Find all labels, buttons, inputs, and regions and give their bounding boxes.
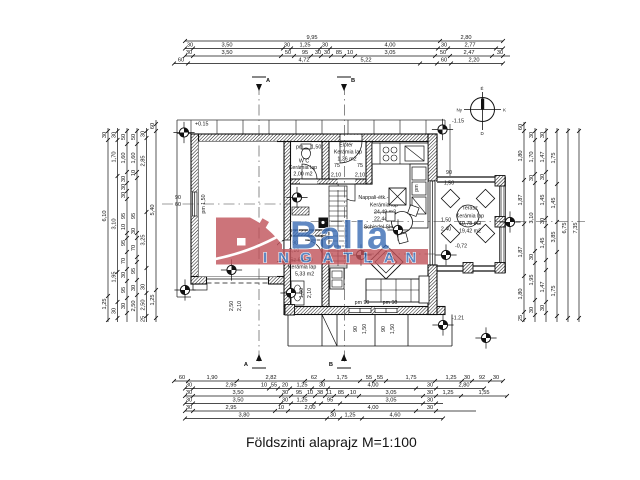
svg-text:1,47: 1,47 [540,281,546,292]
svg-text:1,50: 1,50 [444,181,454,187]
svg-text:75: 75 [357,163,363,169]
svg-text:10,78 m2: 10,78 m2 [459,221,481,227]
svg-text:30: 30 [497,50,503,56]
svg-text:10: 10 [261,383,267,389]
svg-text:30: 30 [121,184,127,190]
svg-text:30: 30 [330,413,336,419]
svg-text:19,42 m2: 19,42 m2 [459,229,481,235]
svg-text:1,36 m2: 1,36 m2 [337,157,356,163]
svg-text:2,50: 2,50 [141,299,147,310]
svg-text:30: 30 [322,43,328,49]
svg-text:10: 10 [131,170,137,176]
svg-text:30: 30 [121,192,127,198]
svg-text:60: 60 [175,202,181,208]
svg-text:W C: W C [299,159,309,165]
svg-text:1,25: 1,25 [344,413,355,419]
svg-text:pm: pm [414,184,420,192]
svg-text:30: 30 [529,307,535,313]
svg-text:2,10: 2,10 [307,288,313,298]
svg-text:2,80: 2,80 [458,383,469,389]
svg-text:2,47: 2,47 [463,50,474,56]
svg-text:2,00 m2: 2,00 m2 [293,172,312,178]
svg-text:1,87: 1,87 [518,194,524,205]
svg-text:4,00: 4,00 [367,405,378,411]
svg-text:1,50: 1,50 [311,145,321,151]
svg-text:3,10: 3,10 [112,218,118,229]
svg-text:1,95: 1,95 [529,274,535,285]
svg-text:1,50: 1,50 [390,324,396,334]
svg-text:3,50: 3,50 [232,390,243,396]
svg-text:Kerámia lap: Kerámia lap [289,165,317,171]
svg-text:4,00: 4,00 [367,383,378,389]
svg-text:+0.15: +0.15 [195,122,208,128]
svg-text:95: 95 [131,213,137,219]
svg-text:30: 30 [529,132,535,138]
svg-text:3,85: 3,85 [551,231,557,242]
svg-text:6,75: 6,75 [562,222,568,233]
svg-text:30: 30 [319,383,325,389]
svg-text:2,50: 2,50 [131,300,137,311]
svg-text:30: 30 [540,132,546,138]
svg-text:3,10: 3,10 [529,212,535,223]
svg-text:92: 92 [479,375,485,381]
svg-text:70: 70 [131,245,137,251]
svg-text:4,60: 4,60 [389,413,400,419]
svg-text:2,10: 2,10 [331,173,341,179]
svg-text:95: 95 [327,398,333,404]
svg-text:1,25: 1,25 [299,43,310,49]
svg-text:1,75: 1,75 [551,152,557,163]
svg-text:1,25: 1,25 [296,398,307,404]
svg-text:50: 50 [440,50,446,56]
svg-text:11: 11 [326,390,332,396]
svg-text:95: 95 [296,390,302,396]
svg-text:30: 30 [315,50,321,56]
svg-text:30: 30 [102,132,108,138]
svg-text:30: 30 [427,398,433,404]
svg-text:Előtér: Előtér [339,143,353,149]
svg-text:30: 30 [131,228,137,234]
svg-text:3,05: 3,05 [385,390,396,396]
svg-text:Kerámia lap: Kerámia lap [456,214,484,220]
svg-text:30: 30 [540,305,546,311]
svg-text:30: 30 [427,383,433,389]
svg-text:1,50: 1,50 [441,218,451,224]
svg-text:2,82: 2,82 [265,375,276,381]
svg-text:1,70: 1,70 [112,151,118,162]
svg-text:1,75: 1,75 [336,375,347,381]
svg-text:90: 90 [381,326,387,332]
svg-text:90: 90 [353,326,359,332]
svg-text:25: 25 [141,316,147,322]
svg-text:85: 85 [338,390,344,396]
svg-text:3,50: 3,50 [221,50,232,56]
svg-text:2,80: 2,80 [460,35,471,41]
svg-text:60: 60 [518,124,524,130]
svg-text:5,40: 5,40 [150,204,156,215]
svg-text:3,05: 3,05 [384,50,395,56]
svg-text:2,10: 2,10 [237,301,243,311]
svg-text:38: 38 [317,390,323,396]
svg-text:10: 10 [121,224,127,230]
svg-text:95: 95 [121,240,127,246]
svg-text:1,25: 1,25 [296,383,307,389]
svg-text:2,50: 2,50 [229,301,235,311]
svg-text:30: 30 [464,375,470,381]
svg-text:Földszinti alaprajz M=1:100: Földszinti alaprajz M=1:100 [246,434,417,450]
svg-text:É: É [481,85,484,91]
svg-text:2,95: 2,95 [225,383,236,389]
svg-text:30: 30 [540,174,546,180]
svg-text:1,60: 1,60 [131,152,137,163]
svg-text:4,00: 4,00 [384,43,395,49]
svg-text:A: A [244,362,248,368]
svg-text:5,33 m2: 5,33 m2 [295,272,314,278]
svg-text:30: 30 [141,131,147,137]
svg-text:60: 60 [150,123,156,129]
svg-text:3,50: 3,50 [232,398,243,404]
svg-text:30: 30 [284,43,290,49]
svg-text:30: 30 [282,390,288,396]
svg-text:30: 30 [131,285,137,291]
svg-text:pm: pm [296,145,304,151]
svg-text:1,25: 1,25 [442,390,453,396]
svg-text:1,45: 1,45 [540,237,546,248]
svg-text:30: 30 [121,303,127,309]
svg-text:95: 95 [302,50,308,56]
svg-text:1,25: 1,25 [150,294,156,305]
svg-text:30: 30 [112,308,118,314]
svg-text:1,70: 1,70 [529,151,535,162]
svg-text:1,75: 1,75 [551,285,557,296]
svg-text:30: 30 [529,254,535,260]
svg-text:6,10: 6,10 [102,210,108,221]
svg-text:55: 55 [271,383,277,389]
svg-text:9,95: 9,95 [306,35,317,41]
svg-text:INGATLAN: INGATLAN [263,250,427,267]
svg-text:75: 75 [334,163,340,169]
svg-text:30: 30 [186,405,192,411]
svg-text:1,95: 1,95 [112,271,118,282]
svg-text:60: 60 [179,375,185,381]
svg-text:30: 30 [529,175,535,181]
svg-text:90: 90 [446,170,452,176]
svg-text:30: 30 [121,176,127,182]
svg-text:1,87: 1,87 [518,246,524,257]
svg-text:2,95: 2,95 [225,405,236,411]
svg-text:pm 90: pm 90 [383,300,398,306]
svg-text:4,72: 4,72 [298,58,309,64]
svg-text:85: 85 [336,50,342,56]
svg-text:1,75: 1,75 [405,375,416,381]
svg-text:2,10: 2,10 [355,173,365,179]
svg-text:95: 95 [121,287,127,293]
svg-text:1,25: 1,25 [445,375,456,381]
svg-text:10: 10 [278,405,284,411]
svg-text:10: 10 [350,390,356,396]
svg-text:1,25: 1,25 [102,298,108,309]
svg-text:30: 30 [427,405,433,411]
svg-text:30: 30 [493,375,499,381]
svg-text:1,45: 1,45 [540,194,546,205]
svg-text:5,22: 5,22 [360,58,371,64]
svg-text:25: 25 [518,315,524,321]
svg-text:90: 90 [175,195,181,201]
svg-text:1,80: 1,80 [518,150,524,161]
svg-text:30: 30 [186,390,192,396]
svg-text:30: 30 [540,218,546,224]
svg-text:2,20: 2,20 [468,58,479,64]
svg-text:-1.21: -1.21 [452,316,464,322]
svg-text:Ny: Ny [457,108,463,113]
svg-text:1,50: 1,50 [362,324,368,334]
svg-text:-0,72: -0,72 [455,244,467,250]
svg-text:70: 70 [121,258,127,264]
svg-text:30: 30 [186,398,192,404]
svg-text:2,40: 2,40 [441,227,451,233]
svg-text:30: 30 [282,398,288,404]
svg-text:30: 30 [324,50,330,56]
svg-text:50: 50 [121,134,127,140]
svg-text:30: 30 [121,272,127,278]
svg-text:55: 55 [377,375,383,381]
svg-text:pm 90: pm 90 [355,300,370,306]
svg-text:1,55: 1,55 [478,390,489,396]
svg-text:95: 95 [121,213,127,219]
svg-text:3,05: 3,05 [385,398,396,404]
svg-text:1,90: 1,90 [206,375,217,381]
svg-text:-1.15: -1.15 [452,119,464,125]
svg-text:30: 30 [141,284,147,290]
svg-text:50: 50 [131,134,137,140]
svg-text:B: B [329,362,333,368]
svg-text:10: 10 [307,390,313,396]
svg-text:Terasz: Terasz [462,206,478,212]
svg-text:K: K [503,108,506,113]
svg-text:60: 60 [441,58,447,64]
svg-text:1,60: 1,60 [121,152,127,163]
svg-text:30: 30 [441,43,447,49]
svg-text:62: 62 [311,375,317,381]
svg-text:1,00: 1,00 [299,288,305,298]
svg-text:55: 55 [366,375,372,381]
svg-text:30: 30 [187,43,193,49]
svg-text:1,80: 1,80 [518,288,524,299]
svg-text:10: 10 [347,50,353,56]
svg-text:60: 60 [178,58,184,64]
svg-text:A: A [266,78,270,84]
svg-text:20: 20 [282,383,288,389]
svg-text:3,50: 3,50 [221,43,232,49]
svg-text:3,80: 3,80 [238,413,249,419]
svg-text:95: 95 [131,268,137,274]
svg-text:B: B [351,78,355,84]
svg-text:30: 30 [186,383,192,389]
svg-text:30: 30 [427,390,433,396]
svg-text:30: 30 [186,50,192,56]
svg-text:Kerámia lap: Kerámia lap [334,150,362,156]
svg-text:1,47: 1,47 [540,151,546,162]
svg-text:1,45: 1,45 [551,197,557,208]
svg-text:2,00: 2,00 [304,405,315,411]
svg-text:7,35: 7,35 [573,222,579,233]
svg-text:2,85: 2,85 [141,155,147,166]
svg-text:3,25: 3,25 [141,234,147,245]
svg-text:2,77: 2,77 [464,43,475,49]
svg-text:30: 30 [112,132,118,138]
svg-text:50: 50 [285,50,291,56]
